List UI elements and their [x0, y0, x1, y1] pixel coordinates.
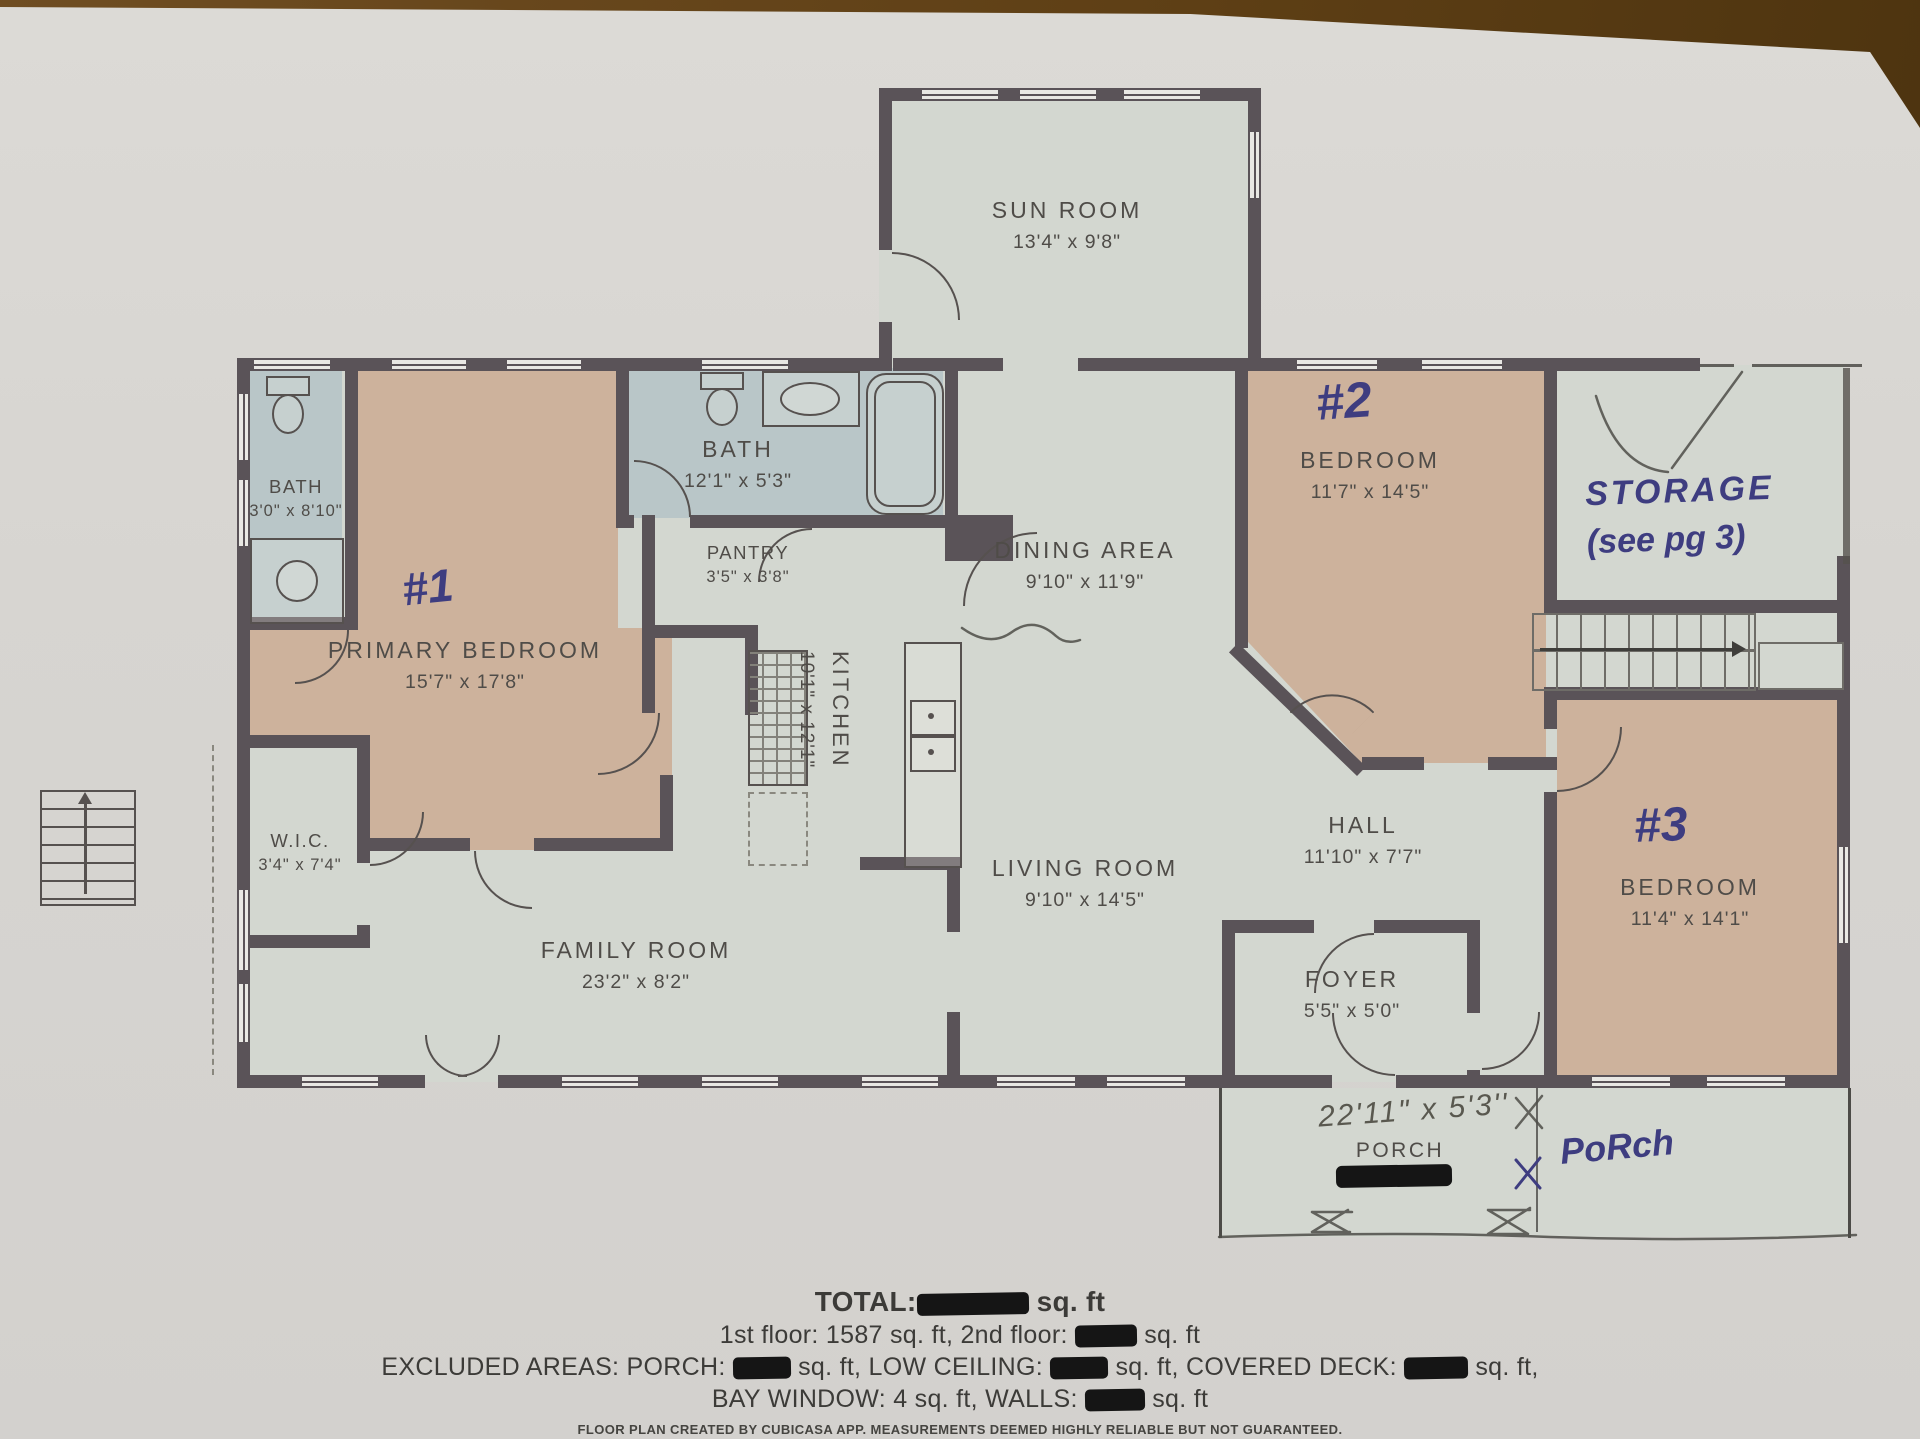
room-label-bedroom-2: BEDROOM 11'7" x 14'5" [1270, 447, 1470, 504]
window [1248, 130, 1261, 200]
room-dims: 11'7" x 14'5" [1270, 481, 1470, 504]
handwritten-storage-note: STORAGE (see pg 3) [1584, 465, 1776, 567]
window [1105, 1075, 1187, 1088]
room-name: W.I.C. [240, 830, 360, 852]
stair-landing [1758, 642, 1844, 690]
room-dims: 23'2" x 8'2" [486, 971, 786, 994]
wall [1362, 757, 1424, 770]
room-dims: 9'10" x 14'5" [955, 889, 1215, 912]
window [300, 1075, 380, 1088]
wall [534, 838, 672, 851]
window [237, 888, 250, 972]
room-name: BATH [236, 476, 356, 498]
room-dims: 10'1" x 12'1" [795, 600, 817, 820]
room-label-porch: PORCH [1320, 1139, 1480, 1163]
wall [1467, 1070, 1480, 1088]
stair-arrowhead [78, 792, 92, 804]
wall [1078, 358, 1248, 371]
window [1590, 1075, 1672, 1088]
room-dims: 12'1" x 5'3" [638, 470, 838, 493]
stair-arrowhead [1732, 641, 1746, 657]
room-dims: 11'10" x 7'7" [1263, 846, 1463, 869]
window [505, 358, 583, 371]
wall [1222, 920, 1235, 1088]
marker-redaction-porch [1336, 1164, 1452, 1188]
room-name: PRIMARY BEDROOM [315, 637, 615, 664]
room-dims: 9'10" x 11'9" [965, 571, 1205, 594]
wall [947, 1012, 960, 1075]
bathtub-inner [874, 381, 936, 507]
wall [1374, 920, 1480, 933]
wall [243, 735, 370, 748]
pencil-wall [1700, 364, 1734, 367]
window [700, 358, 790, 371]
wall [945, 358, 958, 528]
porch-divider [1536, 1088, 1538, 1232]
room-label-foyer: FOYER 5'5" x 5'0" [1272, 966, 1432, 1023]
marker-redaction [1085, 1388, 1145, 1411]
wall [616, 358, 629, 528]
summary-line: EXCLUDED AREAS: PORCH: sq. ft, LOW CEILI… [0, 1353, 1920, 1382]
room-name: BEDROOM [1270, 447, 1470, 474]
summary-text: sq. ft, [1468, 1353, 1538, 1381]
room-dims: 3'4" x 7'4" [240, 856, 360, 875]
room-dims: 3'5" x 3'8" [668, 568, 828, 587]
wall [1544, 687, 1557, 729]
room-name: KITCHEN [827, 600, 853, 820]
staircase-exterior [40, 790, 136, 906]
room-name: BEDROOM [1590, 874, 1790, 901]
stair-arrow [84, 802, 87, 894]
window [560, 1075, 640, 1088]
summary-lines: TOTAL: sq. ft1st floor: 1587 sq. ft, 2nd… [0, 1286, 1920, 1413]
room-name: FOYER [1272, 966, 1432, 993]
wall [616, 515, 634, 528]
handwritten-bedroom-2-number: #2 [1314, 370, 1374, 432]
summary-line: TOTAL: sq. ft [0, 1286, 1920, 1318]
pencil-wall [1752, 364, 1862, 367]
wall [1544, 600, 1845, 613]
wall [1222, 920, 1314, 933]
wall [642, 515, 655, 713]
summary-text: sq. ft [1029, 1286, 1106, 1317]
room-dims: 11'4" x 14'1" [1590, 908, 1790, 931]
window [237, 392, 250, 462]
window [252, 358, 332, 371]
room-dims: 13'4" x 9'8" [947, 231, 1187, 254]
room-name: BATH [638, 436, 838, 463]
summary-text: sq. ft [1145, 1385, 1208, 1413]
wall [690, 515, 958, 528]
summary-text: BAY WINDOW: 4 sq. ft, WALLS: [712, 1385, 1085, 1413]
room-label-hall: HALL 11'10" x 7'7" [1263, 812, 1463, 869]
window [390, 358, 468, 371]
window [1705, 1075, 1787, 1088]
wall [1544, 358, 1557, 613]
toilet-tank [266, 376, 310, 396]
wall [642, 625, 758, 638]
room-label-dining-area: DINING AREA 9'10" x 11'9" [965, 537, 1205, 594]
summary-text: sq. ft, LOW CEILING: [791, 1353, 1050, 1381]
room-label-wic: W.I.C. 3'4" x 7'4" [240, 830, 360, 875]
sink-dot [928, 713, 934, 719]
stair-arrow [1540, 648, 1736, 651]
summary-text: TOTAL: [815, 1286, 917, 1317]
room-label-pantry: PANTRY 3'5" x 3'8" [668, 542, 828, 587]
wall [1544, 792, 1557, 1088]
summary-text: EXCLUDED AREAS: PORCH: [381, 1353, 732, 1381]
window [860, 1075, 940, 1088]
wall [1837, 556, 1850, 1088]
room-dims: 3'0" x 8'10" [236, 502, 356, 521]
wall [1235, 358, 1248, 648]
window [1122, 88, 1202, 101]
wall [1467, 933, 1480, 1013]
room-name: PANTRY [668, 542, 828, 564]
summary-line: BAY WINDOW: 4 sq. ft, WALLS: sq. ft [0, 1385, 1920, 1414]
handwritten-bedroom-1-number: #1 [399, 557, 456, 616]
wall [237, 358, 250, 1088]
window [1018, 88, 1098, 101]
room-label-family-room: FAMILY ROOM 23'2" x 8'2" [486, 937, 786, 994]
wall [1488, 757, 1557, 770]
storage-note-line2: (see pg 3) [1586, 512, 1776, 566]
door-gap [879, 250, 892, 322]
summary-block: TOTAL: sq. ft1st floor: 1587 sq. ft, 2nd… [0, 1283, 1920, 1437]
summary-text: sq. ft, COVERED DECK: [1108, 1353, 1404, 1381]
storage-note-line1: STORAGE [1584, 465, 1774, 519]
window [920, 88, 1000, 101]
marker-redaction [733, 1356, 791, 1379]
room-name: FAMILY ROOM [486, 937, 786, 964]
toilet-bowl [272, 394, 304, 434]
sink-dot [928, 749, 934, 755]
window [1420, 358, 1504, 371]
marker-redaction [1075, 1325, 1137, 1348]
porch-edge [1848, 1088, 1851, 1238]
marker-redaction [1404, 1356, 1468, 1379]
porch-edge [1219, 1088, 1222, 1238]
room-dims: 5'5" x 5'0" [1272, 1000, 1432, 1023]
window [700, 1075, 780, 1088]
wall [243, 935, 370, 948]
marker-redaction [1050, 1356, 1108, 1379]
floor-plan: SUN ROOM 13'4" x 9'8" BATH 12'1" x 5'3" … [0, 0, 1920, 1439]
room-label-kitchen: KITCHEN 10'1" x 12'1" [795, 600, 853, 820]
window [995, 1075, 1077, 1088]
low-ceiling-dashed-line [212, 745, 214, 1075]
room-label-bath-upper: BATH 12'1" x 5'3" [638, 436, 838, 493]
wall [879, 88, 892, 371]
room-name: LIVING ROOM [955, 855, 1215, 882]
summary-line: 1st floor: 1587 sq. ft, 2nd floor: sq. f… [0, 1321, 1920, 1350]
sink-basin [780, 382, 840, 416]
room-label-bath-left: BATH 3'0" x 8'10" [236, 476, 356, 521]
wall [660, 775, 673, 851]
handwritten-bedroom-3-number: #3 [1633, 797, 1688, 854]
room-dims: 15'7" x 17'8" [315, 671, 615, 694]
room-label-primary-bedroom: PRIMARY BEDROOM 15'7" x 17'8" [315, 637, 615, 694]
staircase-main [1532, 613, 1756, 691]
room-label-bedroom-3: BEDROOM 11'4" x 14'1" [1590, 874, 1790, 931]
window [1295, 358, 1379, 371]
room-label-sun-room: SUN ROOM 13'4" x 9'8" [947, 197, 1187, 254]
room-name: HALL [1263, 812, 1463, 839]
credit-line: FLOOR PLAN CREATED BY CUBICASA APP. MEAS… [0, 1422, 1920, 1437]
room-name: DINING AREA [965, 537, 1205, 564]
summary-text: sq. ft [1137, 1321, 1200, 1349]
window [1837, 845, 1850, 945]
summary-text: 1st floor: 1587 sq. ft, 2nd floor: [720, 1321, 1075, 1349]
toilet-bowl [706, 388, 738, 426]
room-name: PORCH [1320, 1139, 1480, 1163]
window [237, 982, 250, 1044]
marker-redaction [916, 1292, 1028, 1316]
room-name: SUN ROOM [947, 197, 1187, 224]
shower-drain [276, 560, 318, 602]
pencil-wall [1843, 368, 1850, 564]
room-label-living-room: LIVING ROOM 9'10" x 14'5" [955, 855, 1215, 912]
